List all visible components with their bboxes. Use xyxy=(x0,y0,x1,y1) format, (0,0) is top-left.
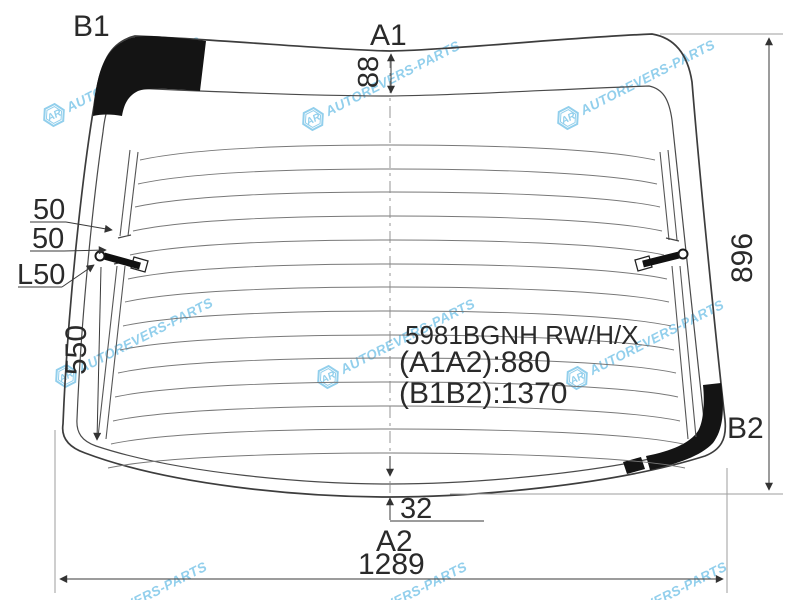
label-a2: A2 xyxy=(376,525,413,558)
label-a1: A1 xyxy=(370,19,407,52)
rear-window-diagram-page: AR AUTOREVERS-PARTS AR AUTOREVERS-PARTS … xyxy=(0,0,800,600)
part-dim-b1b2: (B1B2):1370 xyxy=(399,377,567,410)
defroster-line xyxy=(108,453,685,468)
dim-32: 32 xyxy=(390,456,484,525)
dim-896-value: 896 xyxy=(726,233,759,283)
defroster-line xyxy=(115,382,678,397)
dim-1289: 1289 xyxy=(55,430,727,593)
defroster-line xyxy=(135,192,660,207)
callout-l50: L50 xyxy=(17,259,94,291)
callout-50-first-value: 50 xyxy=(33,194,65,226)
watermark-brand: AUTOREVERS-PARTS xyxy=(577,37,717,118)
left-heater-connector xyxy=(96,252,149,273)
dim-88-value: 88 xyxy=(353,56,385,88)
watermark-top-right: AR AUTOREVERS-PARTS xyxy=(554,35,718,131)
callout-50-second-value: 50 xyxy=(32,223,64,255)
glass-inner-edge xyxy=(77,86,704,484)
part-dim-a1a2: (A1A2):880 xyxy=(399,346,551,379)
callout-l50-value: L50 xyxy=(17,259,65,291)
label-b2: B2 xyxy=(727,412,764,445)
left-busbar xyxy=(98,150,138,439)
defroster-line xyxy=(128,264,667,279)
rear-window-glass-diagram: AR AUTOREVERS-PARTS AR AUTOREVERS-PARTS … xyxy=(0,0,800,600)
dim-550-value: 550 xyxy=(60,325,93,375)
glass-outer-edge xyxy=(63,34,726,497)
callout-50-second: 50 xyxy=(30,223,106,255)
defroster-line xyxy=(113,406,680,421)
b1-tint-patch xyxy=(93,36,206,116)
defroster-line xyxy=(138,169,657,184)
label-b1: B1 xyxy=(73,10,110,43)
defroster-line xyxy=(140,145,655,160)
defroster-line xyxy=(111,429,683,444)
defroster-line xyxy=(133,216,662,231)
dim-32-value: 32 xyxy=(400,493,432,525)
defroster-line xyxy=(130,240,664,255)
